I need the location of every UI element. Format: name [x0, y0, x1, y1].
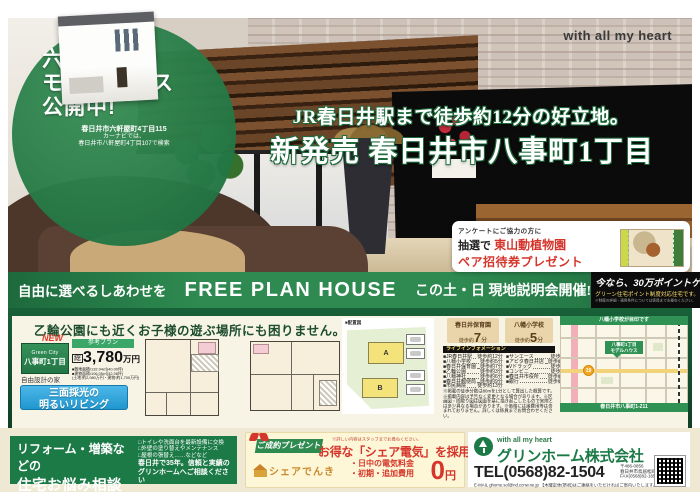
house-icon: [254, 466, 267, 477]
life-info-list: ■JR春日井駅徒歩約12分 ■八幡小学校徒歩約5分 ■春日井保育園徒歩約7分 ■…: [443, 355, 556, 389]
reform-item4: 春日井で35年。信頼と実績の: [138, 460, 233, 468]
project-logo-main: 八事町1丁目: [24, 356, 66, 367]
price-prefix: 総: [72, 354, 83, 363]
points-campaign: 今なら、30万ポイントゲット!! グリーン住宅ポイント制度対応住宅です。 ※制度…: [591, 272, 700, 308]
price: 総3,780万円: [72, 349, 140, 367]
reform-detail-text: □トイレや洗面台を最新設備に交換 □外壁の塗り替えやメンテナンス □屋根の張替え…: [136, 436, 237, 484]
route-number-badge: 19: [583, 365, 594, 376]
new-label: NEW: [42, 333, 63, 343]
company-email: E-MAIL ghome.sol@nd.ccnw.ne.jp 【木曜定休(祭祝)…: [474, 482, 659, 488]
house-garage: [69, 76, 104, 94]
brand-slogan: with all my heart: [563, 28, 672, 43]
campaign-line2-emphasis: 東山動植物園: [494, 238, 566, 252]
map-park: [601, 377, 613, 384]
denki-note: ※詳しい内容はスタッフまでお尋ねください。: [332, 436, 421, 442]
campaign-line2-prefix: 抽選で: [458, 240, 494, 252]
access-walk-prefix: 徒歩約: [515, 338, 530, 344]
reform-line1: リフォーム・増築などの: [17, 440, 136, 474]
map-park: [653, 343, 663, 351]
badge-address-line3: 春日井市八軒屋町4丁目107で検索: [24, 141, 224, 149]
map-footer: 春日井市八事町1-211: [560, 403, 688, 412]
life-info-note: ※掲載の徒歩分数は80mを1分として算出した概算です。※掲載内容は予告なく変更と…: [443, 390, 556, 419]
share-denki-box: ご成約プレゼント ※詳しい内容はスタッフまでお尋ねください。 お得な「シェア電気…: [245, 432, 465, 488]
denki-zero-yen: 0円: [431, 455, 456, 486]
floor-plan-wall: [146, 392, 218, 393]
denki-items: ・日中の電気料金 ・初期・追加費用: [350, 459, 414, 479]
project-logo-sub: 自由設計の家: [21, 374, 60, 384]
map-pin-line2: モデルハウス: [605, 348, 643, 354]
badge-address-line1: 春日井市六軒屋町4丁目115: [24, 126, 224, 134]
car-icon: [406, 334, 425, 345]
badge-address-line2: カーナビでは、: [24, 134, 224, 142]
ticket-stub-left: [621, 230, 629, 266]
car-icon: [406, 384, 425, 395]
house-roof: [58, 12, 154, 27]
map-header: 八幡小学校が目印です: [560, 316, 688, 325]
company-logo-icon: [474, 437, 493, 456]
feature-line1: 三面採光の: [21, 388, 127, 400]
headline-sub: JR春日井駅まで徒歩約12分の好立地。: [248, 102, 674, 129]
map-pin-flag: 八事町1丁目 モデルハウス: [605, 341, 643, 354]
points-note: ※制度の詳細・適用条件については係員までお尋ねください。: [595, 298, 688, 303]
floor-plan-wall: [166, 392, 167, 415]
company-name: グリンホーム株式会社: [497, 445, 644, 466]
catch-banner: 自由に選べるしあわせを FREE PLAN HOUSE この土・日 現地説明会開…: [8, 272, 692, 308]
zero-value: 0: [431, 455, 445, 485]
balcony: [319, 380, 337, 406]
price-value: 3,780: [83, 349, 123, 366]
closet: [253, 344, 269, 354]
denki-item2: ・初期・追加費用: [350, 469, 414, 479]
access-name: 春日井保育園: [447, 320, 499, 329]
headline-main: 新発売 春日井市八事町1丁目: [246, 128, 678, 170]
railway-line: [678, 325, 680, 403]
banner-right-text: この土・日 現地説明会開催!: [415, 280, 591, 300]
model-house-photo: [58, 12, 158, 105]
map-road: [561, 387, 687, 389]
share-denki-logo: シェアでんき: [254, 463, 335, 478]
reference-plan-label: 参考プラン: [72, 339, 134, 348]
site-plan: ■配置図 A B: [342, 318, 434, 414]
life-info-title: ライフインフォメーション: [443, 346, 555, 353]
ticket-image: [620, 229, 684, 267]
company-note: 【木曜定休(祭祝)はご連絡をいただければご案内いたします。】: [540, 483, 659, 488]
access-map: 八幡小学校が目印です 19 八事町1丁目 モデルハウス 春日井市八事町1-211: [560, 316, 688, 412]
denki-item1: ・日中の電気料金: [350, 459, 414, 469]
banner-center-text: FREE PLAN HOUSE: [185, 279, 398, 302]
feature-line2: 明るいリビング: [21, 400, 127, 412]
reform-item3: □屋根の張替え……などなど: [138, 453, 233, 459]
company-email-text: E-MAIL ghome.sol@nd.ccnw.ne.jp: [474, 483, 539, 488]
bathroom: [198, 342, 216, 354]
map-road: [561, 337, 687, 339]
flyer: with all my heart 六軒屋 モデルハウス 公開中! 春日井市六軒…: [0, 0, 700, 492]
house-door: [117, 67, 128, 87]
badge-address: 春日井市六軒屋町4丁目115 カーナビでは、 春日井市八軒屋町4丁目107で検索: [24, 126, 224, 149]
feature-box: 三面採光の 明るいリビング: [20, 385, 128, 410]
ribbon-bow-icon: [250, 431, 268, 443]
lot-b: B: [362, 378, 398, 398]
company-box: with all my heart グリンホーム株式会社 TEL(0568)82…: [468, 432, 690, 487]
access-unit: 分: [481, 338, 487, 344]
map-body: 19 八事町1丁目 モデルハウス: [560, 325, 688, 403]
floor-plan-wall: [291, 342, 292, 410]
map-road: [561, 357, 687, 359]
qr-code: [655, 456, 685, 486]
reform-main-text: リフォーム・増築などの 住宅お悩み相談も お気軽にお問合わせください: [10, 436, 136, 484]
access-walk-prefix: 徒歩約: [459, 338, 474, 344]
ticket-stub-right: [673, 230, 683, 266]
floor-plan-1f: [145, 339, 219, 416]
share-denki-logo-text: シェアでんき: [269, 467, 335, 478]
company-brand: with all my heart: [497, 437, 552, 444]
lot-a: A: [368, 342, 404, 364]
floor-plan-wall: [251, 374, 339, 375]
car-icon: [406, 348, 425, 359]
points-main: 今なら、30万ポイントゲット!!: [595, 275, 700, 289]
map-road-major: [561, 369, 687, 373]
company-tel: TEL(0568)82-1504: [474, 464, 604, 482]
access-box-nursery: 春日井保育園 徒歩約7分: [447, 318, 499, 343]
house-windows: [115, 28, 142, 51]
reform-box: リフォーム・増築などの 住宅お悩み相談も お気軽にお問合わせください □トイレや…: [10, 436, 237, 484]
tiled-terrace: [191, 354, 219, 372]
access-unit: 分: [537, 338, 543, 344]
floor-plan-wall: [313, 374, 314, 410]
access-box-school: 八幡小学校 徒歩約5分: [505, 318, 553, 343]
price-unit: 万円: [123, 354, 140, 364]
plan-heading: 乙輪公園にも近くお子様の遊ぶ場所にも困りません。: [34, 320, 346, 339]
site-plan-label: ■配置図: [345, 320, 361, 326]
yen-unit: 円: [445, 470, 456, 482]
life-info-col-left: ■JR春日井駅徒歩約12分 ■八幡小学校徒歩約5分 ■春日井保育園徒歩約7分 ■…: [443, 355, 503, 389]
points-sub: グリーン住宅ポイント制度対応住宅です。: [595, 290, 700, 298]
floor-plan-2f: [250, 341, 340, 411]
banner-left-text: 自由に選べるしあわせを: [18, 280, 167, 300]
reform-item5: グリンホームへご相談ください: [138, 469, 233, 485]
project-logo: Green City 八事町1丁目: [21, 343, 69, 374]
car-icon: [406, 370, 425, 381]
ticket-art: [629, 230, 673, 266]
floor-plan-wall: [190, 340, 191, 415]
reform-line2: 住宅お悩み相談も: [17, 474, 136, 492]
campaign-box: アンケートにご協力の方に 抽選で 東山動植物園 ペア招待券プレゼント: [452, 221, 690, 272]
access-name: 八幡小学校: [505, 320, 553, 329]
